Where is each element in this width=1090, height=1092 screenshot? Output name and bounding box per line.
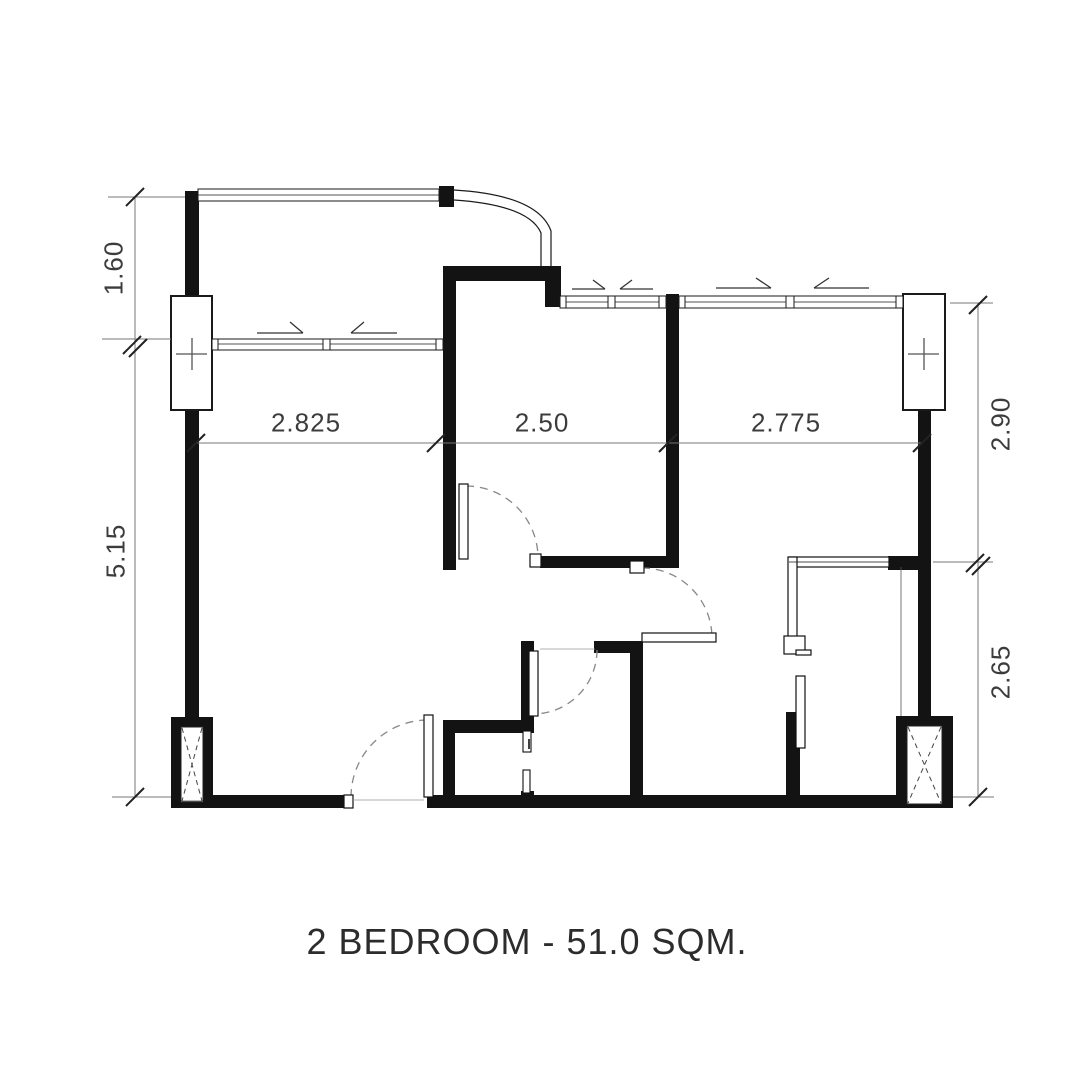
- door-arc-hall: [642, 568, 712, 638]
- sliding-door-kitchen: [784, 557, 889, 748]
- door-arc-bedroom2: [466, 486, 538, 558]
- shaft-x-cross-icon: [182, 727, 941, 803]
- door-frame-cap: [530, 554, 541, 567]
- wall-bottom-left: [212, 795, 353, 808]
- arrow-right-icon: [716, 278, 771, 288]
- door-leaf-entrance: [424, 715, 433, 797]
- walls: [171, 186, 953, 808]
- dim-label-right-top: 2.90: [986, 397, 1017, 452]
- dim-label-middle-left: 2.825: [271, 408, 341, 439]
- balcony-railing: [198, 189, 551, 266]
- wall-right-stub: [888, 556, 931, 570]
- door-frame-cap: [630, 561, 644, 573]
- floor-plan: 1.60 5.15 2.825 2.50 2.775 2.90 2.65 2 B…: [0, 0, 1090, 1092]
- structural-columns: [171, 294, 945, 410]
- plan-title: 2 BEDROOM - 51.0 SQM.: [306, 921, 747, 963]
- door-leaf-bathroom: [529, 651, 538, 716]
- wall-right-lower: [918, 570, 931, 718]
- wall-bed2-top: [443, 266, 560, 281]
- dim-label-left-top: 1.60: [99, 241, 130, 296]
- wall-bath-right: [630, 641, 643, 808]
- wall-bed2-left: [443, 266, 456, 570]
- railing-curve: [454, 190, 551, 266]
- service-shafts: [181, 726, 942, 804]
- sliding-panel: [796, 676, 805, 748]
- dim-label-middle-center: 2.50: [515, 408, 570, 439]
- door-frame-cap: [344, 795, 353, 808]
- wall-step-stub: [545, 266, 561, 307]
- wall-bottom-right: [427, 795, 897, 808]
- arrow-left-icon: [620, 280, 653, 289]
- arrow-right-icon: [572, 280, 605, 289]
- wall-bath-top: [443, 720, 531, 733]
- dim-label-middle-right: 2.775: [751, 408, 821, 439]
- wall-balcony-block: [439, 186, 454, 207]
- wall-mid-vertical: [666, 294, 679, 568]
- door-leaf-bedroom2: [459, 484, 468, 559]
- wall-left-lower: [185, 409, 199, 718]
- door-leaf-hall: [642, 633, 716, 642]
- arrow-left-icon: [814, 278, 869, 288]
- wall-left-upper: [185, 191, 199, 299]
- arrow-right-icon: [257, 322, 303, 333]
- wall-bed2-bottom: [540, 556, 679, 568]
- wall-right-upper: [918, 406, 931, 558]
- sliding-frame-foot: [796, 650, 811, 655]
- arrow-left-icon: [351, 322, 397, 333]
- sliding-track-vertical: [788, 557, 797, 638]
- wall-bath-left: [443, 720, 455, 808]
- wall-bath-top-right: [594, 641, 642, 653]
- door-arc-entrance: [351, 720, 428, 797]
- dim-label-left-bottom: 5.15: [101, 524, 132, 579]
- dim-label-right-bottom: 2.65: [986, 645, 1017, 700]
- door-arc-bathroom: [533, 650, 597, 714]
